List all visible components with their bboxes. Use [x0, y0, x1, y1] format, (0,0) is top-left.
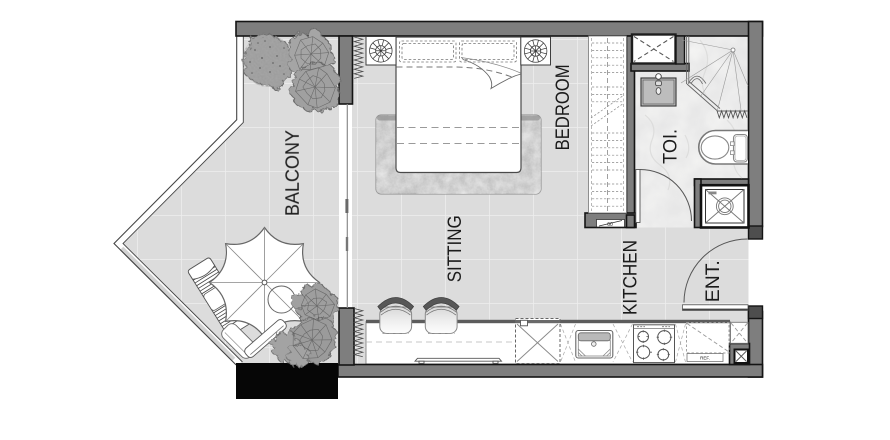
svg-text:REF.: REF.	[700, 356, 710, 361]
svg-text:KITCHEN: KITCHEN	[620, 240, 642, 315]
svg-text:BALCONY: BALCONY	[282, 130, 304, 216]
svg-text:ENT.: ENT.	[702, 260, 724, 302]
svg-text:60: 60	[607, 222, 613, 228]
svg-text:SITTING: SITTING	[444, 215, 466, 282]
svg-text:TOI.: TOI.	[659, 129, 681, 164]
svg-text:BEDROOM: BEDROOM	[552, 64, 574, 150]
